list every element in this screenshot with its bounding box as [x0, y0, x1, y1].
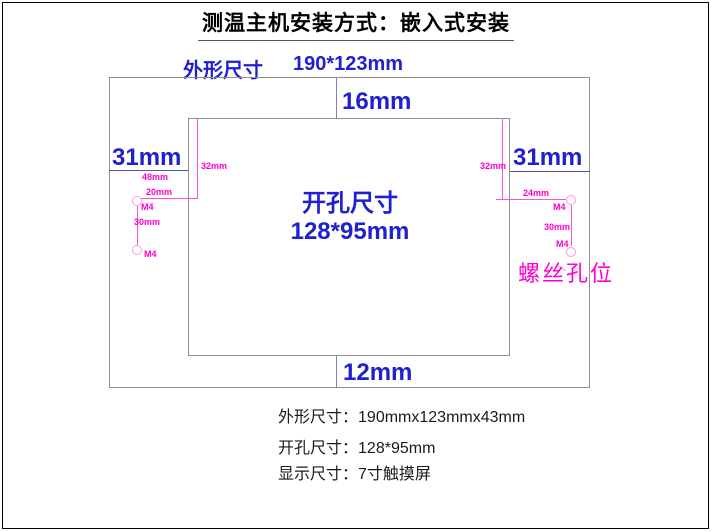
dim-left-depth: 32mm: [201, 161, 227, 171]
dim-line-right-hole-offset: [496, 199, 567, 200]
dim-left-margin: 31mm: [112, 144, 181, 172]
dim-left-pitch: 30mm: [134, 217, 160, 227]
dim-left-edge-offset: 48mm: [142, 172, 168, 182]
cutout-dim-value: 128*95mm: [250, 218, 450, 246]
dim-top-margin: 16mm: [342, 88, 411, 116]
outline-dim-value: 190*123mm: [293, 53, 403, 76]
spec-outline-value: 190mmx123mmx43mm: [358, 409, 525, 426]
page-title-text: 测温主机安装方式：嵌入式安装: [198, 7, 514, 41]
dim-line-left-margin: [109, 170, 188, 171]
dim-left-hole-offset: 20mm: [146, 187, 172, 197]
dim-line-right-pitch: [571, 205, 572, 246]
spec-cutout-value: 128*95mm: [358, 440, 435, 457]
spec-cutout-label: 开孔尺寸：: [278, 440, 358, 457]
cutout-dim-name: 开孔尺寸: [250, 190, 450, 218]
dim-line-top-margin: [336, 78, 337, 118]
thread-left-top: M4: [141, 202, 154, 212]
dim-line-left-depth: [197, 118, 198, 199]
spec-row-outline: 外形尺寸：190mmx123mmx43mm: [278, 403, 525, 427]
screw-hole-right-top: [566, 195, 576, 205]
dim-line-right-margin: [510, 171, 590, 172]
page-title: 测温主机安装方式：嵌入式安装: [0, 7, 712, 41]
spec-display-label: 显示尺寸：: [278, 466, 358, 483]
dim-right-hole-offset: 24mm: [523, 188, 549, 198]
thread-left-bottom: M4: [144, 249, 157, 259]
spec-row-display: 显示尺寸：7寸触摸屏: [278, 460, 431, 484]
dim-line-right-depth: [502, 118, 503, 199]
screw-holes-caption: 螺丝孔位: [518, 256, 614, 288]
dim-line-bottom-margin: [336, 356, 337, 387]
drawing-canvas: 测温主机安装方式：嵌入式安装 外形尺寸 190*123mm 开孔尺寸 128*9…: [0, 0, 712, 532]
dim-bottom-margin: 12mm: [343, 359, 412, 387]
spec-outline-label: 外形尺寸：: [278, 409, 358, 426]
dim-line-left-hole-offset: [137, 198, 198, 199]
screw-hole-left-bottom: [132, 245, 142, 255]
spec-row-cutout: 开孔尺寸：128*95mm: [278, 434, 435, 458]
spec-display-value: 7寸触摸屏: [358, 466, 431, 483]
cutout-dim-label: 开孔尺寸 128*95mm: [250, 190, 450, 246]
dim-right-depth: 32mm: [480, 161, 506, 171]
thread-right-top: M4: [553, 202, 566, 212]
dim-right-margin: 31mm: [513, 144, 582, 172]
dim-right-pitch: 30mm: [544, 222, 570, 232]
